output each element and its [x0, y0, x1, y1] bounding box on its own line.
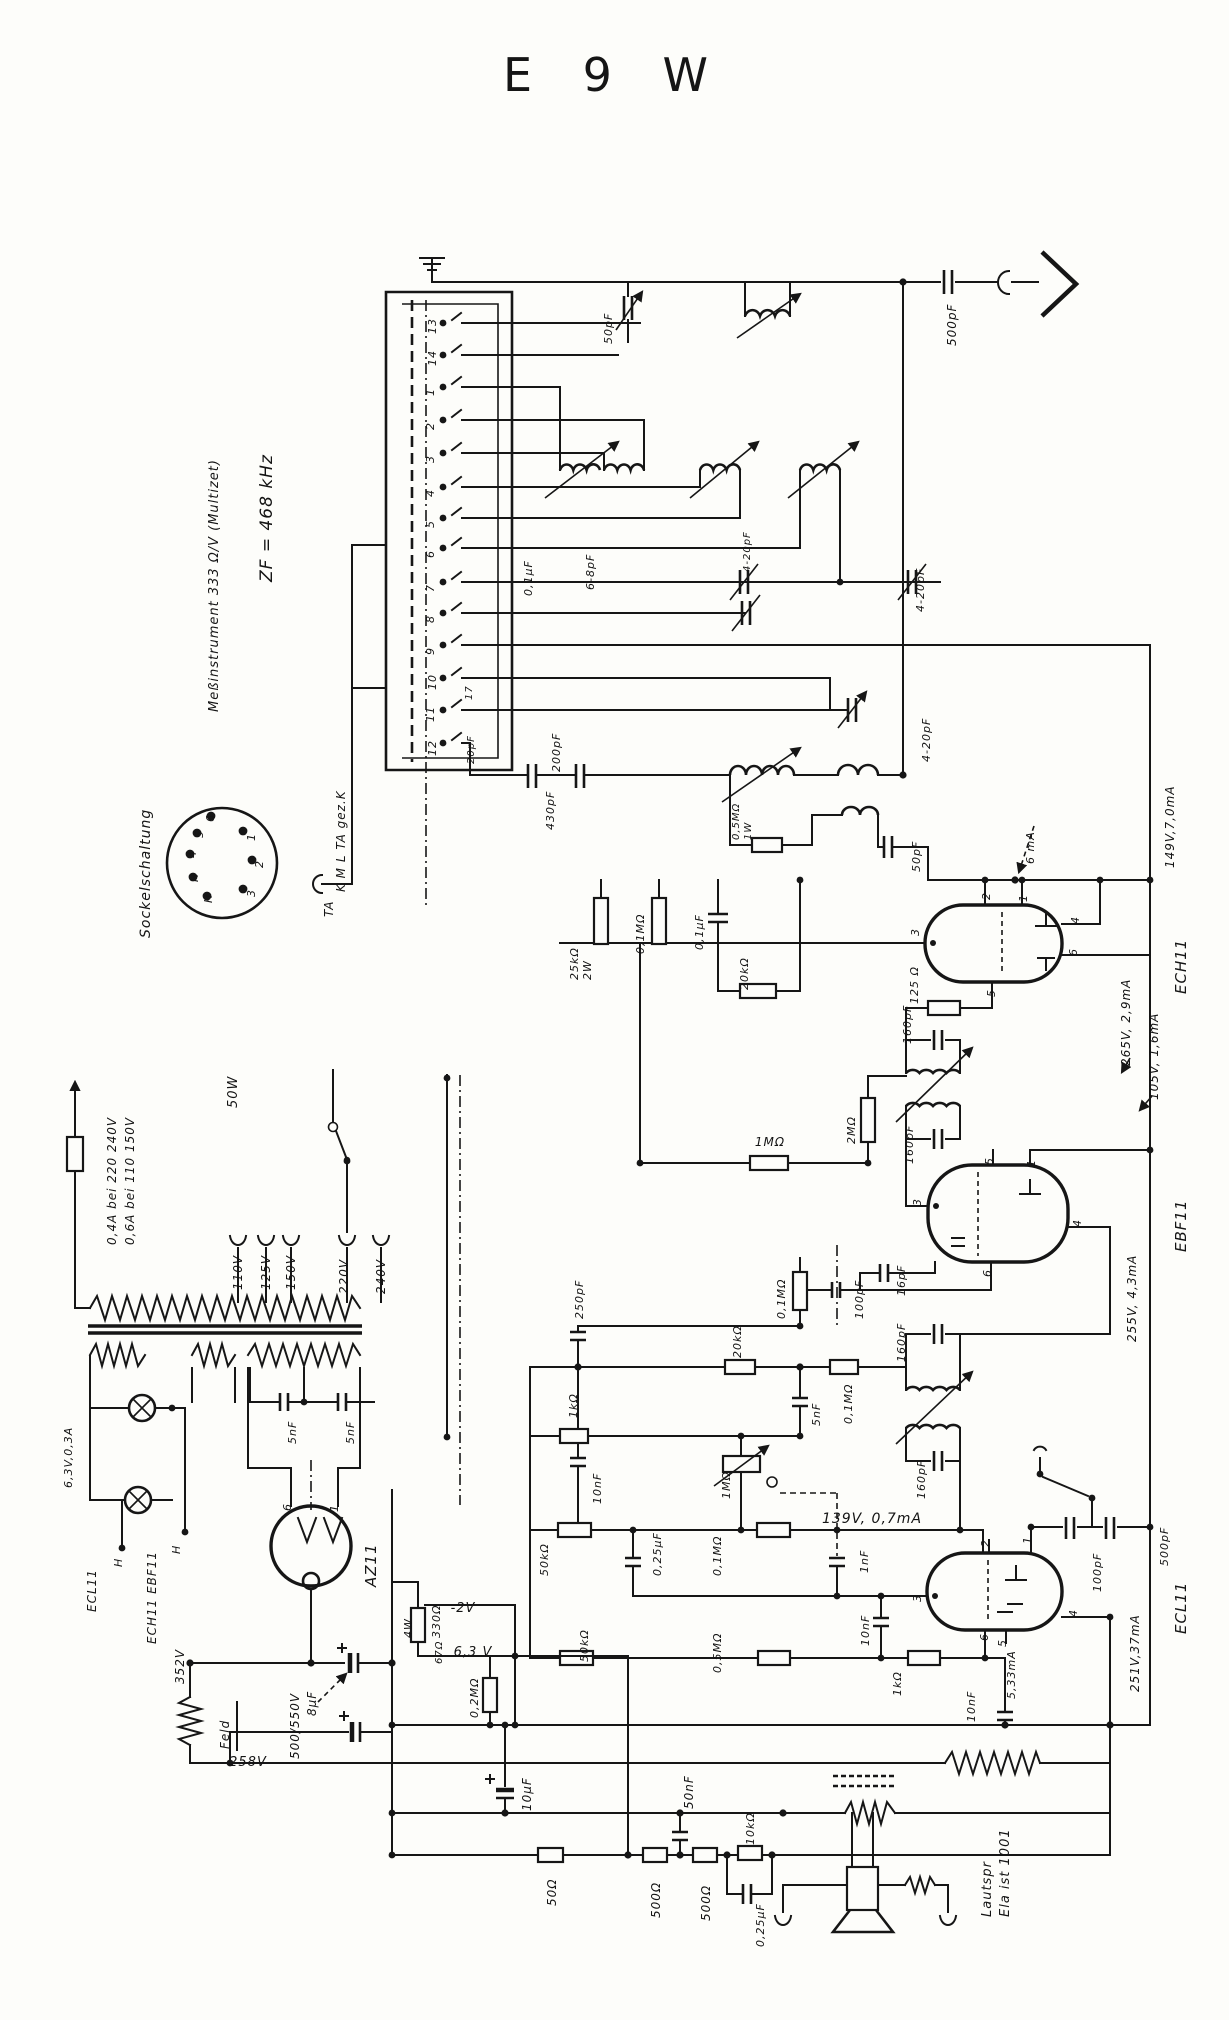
tap-240v: 240V	[374, 1259, 388, 1294]
resistor-125ohm	[928, 1001, 960, 1015]
trimmer-20pf: 20pF	[466, 735, 477, 764]
contact-3: 3	[424, 455, 437, 463]
value-5nf-det: 5nF	[810, 1403, 823, 1426]
tube-name-ecl11: ECL11	[1172, 1582, 1190, 1634]
resistor-500ohm-1	[643, 1848, 667, 1862]
coil-icon	[906, 1387, 960, 1428]
resistor-01mohm-ech	[652, 898, 666, 944]
value-01mohm-ech: 0,1MΩ	[634, 914, 647, 954]
value-50ohm: 50Ω	[545, 1879, 559, 1906]
speaker-note-1: Lautspr	[980, 1860, 995, 1917]
value-500ohm-2: 500Ω	[699, 1885, 713, 1921]
socket-pin-h1: H	[188, 873, 201, 882]
value-6-8pf: 6-8pF	[584, 554, 597, 590]
value-10nf-k: 10nF	[965, 1691, 978, 1722]
ecl-pin-5: 5	[996, 1639, 1009, 1647]
value-50kohm-1: 50kΩ	[538, 1543, 551, 1576]
ecl-pin-1: 1	[1021, 1536, 1034, 1544]
socket-pin-2: 2	[253, 860, 266, 868]
pilot-lamp-1	[129, 1395, 155, 1421]
socket-pin-h2: H	[202, 894, 215, 903]
band-positions: K M L TA gez.K	[334, 790, 348, 892]
speaker-note-2: Ela ist 1001	[998, 1828, 1013, 1917]
ebf11-tube	[928, 1165, 1068, 1262]
resistor-50kohm-1	[558, 1523, 591, 1537]
value-05mohm-g: 0,5MΩ	[711, 1633, 724, 1673]
meas-105v: 105V, 1,6mA	[1147, 1013, 1161, 1100]
transformer-secondary-rect	[192, 1344, 235, 1366]
contact-14: 14	[426, 350, 439, 366]
value-10nf-det: 10nF	[591, 1473, 604, 1504]
heater-h1: H	[170, 1545, 183, 1554]
ecl11-tube	[927, 1553, 1062, 1630]
labels-layer: ZF = 468 kHzMeßinstrument 333 Ω/V (Multi…	[62, 303, 1190, 1947]
contact-8: 8	[424, 615, 437, 623]
ecl-pin-3: 3	[911, 1594, 924, 1602]
resistor-2mohm	[861, 1098, 875, 1142]
coil-icon	[730, 765, 878, 815]
antenna-icon	[1042, 252, 1076, 316]
value-01uf-ech: 0,1μF	[693, 914, 706, 950]
transformer-secondary-ht	[248, 1344, 360, 1366]
socket-pin-1: 1	[245, 833, 258, 841]
value-50kohm-2: 50kΩ	[578, 1629, 591, 1662]
tube-name-ebf11: EBF11	[1172, 1200, 1190, 1252]
coil-icon	[560, 464, 840, 470]
antenna-input	[432, 252, 1076, 775]
value-67ohm: 67Ω	[434, 1641, 445, 1664]
meas-6ma: 6 mA	[1024, 831, 1037, 864]
ebf-pin-4: 4	[1071, 1219, 1084, 1227]
value-1nf: 1nF	[858, 1550, 871, 1573]
value-20kohm-det: 20kΩ	[731, 1325, 744, 1358]
meas-minus2v: -2V	[451, 1601, 476, 1616]
meas-149v: 149V,7,0mA	[1163, 785, 1177, 868]
value-50pf-osc: 50pF	[910, 841, 923, 872]
value-250pf: 250pF	[573, 1280, 586, 1319]
resistor-20kohm-det	[725, 1360, 755, 1374]
resistor-1mohm-avc	[750, 1156, 788, 1170]
value-5nf-2: 5nF	[344, 1421, 357, 1444]
resistor-25kohm-2w	[594, 898, 608, 944]
ecl-pin-6: 6	[978, 1633, 991, 1641]
power-supply	[67, 1070, 628, 1856]
value-10kohm: 10kΩ	[744, 1812, 757, 1845]
value-1mohm-pot: 1MΩ	[720, 1471, 733, 1499]
resistor-01mohm-af	[757, 1523, 790, 1537]
field-coil: Feld	[218, 1720, 232, 1749]
trimmer-17: 17	[464, 685, 475, 700]
value-160pf-3: 160pF	[895, 1323, 908, 1362]
value-4w: 4W	[402, 1618, 415, 1638]
ech11-stage	[560, 880, 1150, 1073]
meas-258v: 258V	[229, 1755, 267, 1770]
value-500-550v: 500/550V	[288, 1693, 302, 1759]
ebf-pin-6: 6	[981, 1269, 994, 1277]
contact-13: 13	[426, 318, 439, 334]
value-50nf: 50nF	[682, 1775, 696, 1809]
ecl-pin-2: 2	[979, 1539, 992, 1547]
tap-125v: 125V	[259, 1255, 273, 1290]
ech11-tube	[925, 905, 1062, 982]
tap-220v: 220V	[337, 1259, 351, 1294]
lamp-rating: 6,3V,0,3A	[62, 1427, 75, 1488]
value-200pf: 200pF	[550, 733, 563, 772]
transformer-secondary-63v	[90, 1344, 145, 1366]
socket-pin-3: 3	[245, 889, 258, 897]
tube-name-az11: AZ11	[362, 1543, 380, 1588]
output-transformer-primary	[945, 1752, 1040, 1774]
meas-63v: 6,3 V	[454, 1645, 493, 1660]
ech-pin-3: 3	[909, 928, 922, 936]
ecl-pin-4: 4	[1067, 1609, 1080, 1617]
value-10nf-g: 10nF	[859, 1615, 872, 1646]
resistor-500ohm-2	[693, 1848, 717, 1862]
meas-352v: 352V	[173, 1649, 187, 1684]
value-25kohm: 25kΩ	[568, 947, 581, 980]
value-2w: 2W	[581, 960, 594, 980]
contact-9: 9	[424, 647, 437, 655]
ech-pin-6: 6	[1067, 948, 1080, 956]
resistor-05mohm-1w	[752, 838, 782, 852]
ech-pin-2: 2	[980, 892, 993, 900]
value-100pf-det: 100pF	[853, 1280, 866, 1319]
schematic-page: { "title": "E 9 W", "colors": { "ink": "…	[0, 0, 1229, 2020]
value-1mohm-avc: 1MΩ	[755, 1135, 785, 1149]
value-025uf-out: 0,25μF	[754, 1903, 767, 1947]
value-01mohm-det: 0,1MΩ	[775, 1279, 788, 1319]
meas-265v: 265V, 2,9mA	[1119, 979, 1133, 1066]
value-500pf-ant: 500pF	[945, 303, 959, 346]
detector-network	[530, 1227, 1110, 1658]
rf-coil-section	[545, 282, 926, 728]
mains-switch[interactable]	[329, 1070, 351, 1232]
meas-139v: 139V, 0,7mA	[822, 1511, 922, 1527]
pilot-lamp-2	[125, 1487, 151, 1513]
tube-name-ech11: ECH11	[1172, 939, 1190, 994]
value-50pf-top: 50pF	[602, 313, 615, 344]
value-01uf-rf: 0,1μF	[522, 560, 535, 596]
note-meter: Meßinstrument 333 Ω/V (Multizet)	[207, 459, 222, 712]
ta-terminal: TA	[322, 901, 336, 917]
coil-icon	[745, 310, 790, 316]
contact-5: 5	[424, 520, 437, 528]
bandswitch-contacts	[440, 313, 1150, 775]
value-4-20pf-c: 4-20pF	[920, 718, 933, 762]
ech-pin-1: 1	[1017, 894, 1030, 902]
value-02mohm: 0,2MΩ	[468, 1678, 481, 1718]
field-coil-winding	[179, 1697, 201, 1745]
ebf-pin-1: 1	[1025, 1159, 1038, 1167]
contact-12: 12	[426, 740, 439, 756]
heater-h2: H	[112, 1558, 125, 1567]
value-100pf-tone: 100pF	[1091, 1553, 1104, 1592]
heater-ech-ebf: ECH11 EBF11	[145, 1551, 159, 1644]
fuse	[67, 1137, 83, 1171]
tap-150v: 150V	[284, 1255, 298, 1290]
value-05mohm-osc: 0,5MΩ	[731, 803, 742, 840]
value-500pf-tone: 500pF	[1158, 1527, 1171, 1566]
ech-pin-4: 4	[1069, 916, 1082, 924]
value-160pf-1: 160pF	[901, 1005, 914, 1044]
az-pin-1: 1	[328, 1504, 341, 1512]
value-01mohm-det2: 0,1MΩ	[842, 1384, 855, 1424]
ebf-pin-3: 3	[911, 1198, 924, 1206]
value-4-20pf-b: 4-20pF	[914, 568, 927, 612]
value-330ohm: 330Ω	[430, 1605, 443, 1638]
resistor-1kohm-det	[560, 1429, 588, 1443]
contact-4: 4	[424, 489, 437, 497]
speaker-icon	[833, 1867, 893, 1932]
coil-icon	[906, 1070, 960, 1106]
note-zf: ZF = 468 kHz	[257, 454, 277, 583]
ecl11-stage	[392, 645, 1150, 1725]
contact-7: 7	[424, 584, 437, 592]
socket-pin-6: 6	[204, 814, 217, 822]
contact-6: 6	[424, 550, 437, 558]
resistor-05mohm-g	[758, 1651, 790, 1665]
tap-110v: 110V	[231, 1255, 245, 1290]
resistor-10kohm	[738, 1846, 762, 1860]
note-sockelschaltung: Sockelschaltung	[138, 809, 154, 938]
contact-11: 11	[424, 706, 437, 722]
resistor-02mohm	[483, 1678, 497, 1712]
ech-pin-5: 5	[985, 989, 998, 997]
oscillator-section	[470, 748, 1150, 880]
contact-1: 1	[424, 388, 437, 396]
value-10uf: 10μF	[520, 1777, 534, 1811]
power-rating: 50W	[226, 1075, 241, 1108]
tone-switch[interactable]	[1034, 1447, 1095, 1527]
value-5nf-1: 5nF	[286, 1421, 299, 1444]
socket-pin-4: 4	[186, 850, 199, 858]
heater-ecl: ECL11	[85, 1569, 99, 1612]
contact-2: 2	[424, 422, 437, 430]
contact-10: 10	[426, 674, 439, 690]
value-430pf: 430pF	[544, 791, 557, 830]
value-4-20pf-a: 4-20pF	[742, 531, 753, 572]
ebf-pin-5: 5	[983, 1157, 996, 1165]
resistor-01mohm-det2	[830, 1360, 858, 1374]
resistor-01mohm-det	[793, 1272, 807, 1310]
transformer-primary	[90, 1296, 360, 1320]
value-01mohm-af: 0,1MΩ	[711, 1536, 724, 1576]
value-16pf: 16pF	[895, 1265, 908, 1296]
value-20kohm-ech: 20kΩ	[738, 957, 751, 990]
fuse-rating-1: 0,4A bei 220 240V	[105, 1117, 119, 1245]
value-500ohm-1: 500Ω	[649, 1882, 663, 1918]
resistor-50ohm	[538, 1848, 563, 1862]
fuse-rating-2: 0,6A bei 110 150V	[123, 1117, 137, 1245]
value-1w-osc: 1W	[743, 822, 754, 840]
value-025uf-af: 0,25μF	[651, 1532, 664, 1576]
value-1kohm-k: 1kΩ	[891, 1671, 904, 1696]
value-160pf-4: 160pF	[915, 1460, 928, 1499]
meas-533ma: 5,33mA	[1005, 1650, 1018, 1699]
value-8uf: 8μF	[305, 1691, 319, 1716]
ground-symbol	[420, 258, 444, 282]
value-125ohm: 125 Ω	[908, 966, 921, 1004]
value-2mohm: 2MΩ	[845, 1116, 858, 1144]
meas-255v: 255V, 4,3mA	[1125, 1255, 1139, 1342]
socket-pin-5: 5	[193, 830, 206, 838]
resistor-1kohm-k	[908, 1651, 940, 1665]
meas-251v: 251V,37mA	[1128, 1614, 1142, 1692]
value-160pf-2: 160pF	[903, 1125, 916, 1164]
schematic-canvas: ZF = 468 kHzMeßinstrument 333 Ω/V (Multi…	[0, 0, 1229, 2020]
voicecoil-resistor	[905, 1877, 935, 1893]
az-pin-6: 6	[281, 1503, 294, 1511]
value-1kohm-det: 1kΩ	[567, 1393, 580, 1418]
